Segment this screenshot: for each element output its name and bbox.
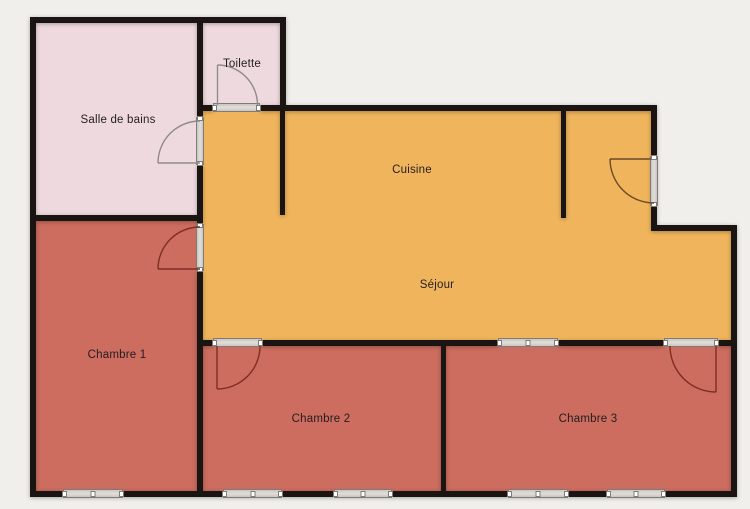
wall-mid-vertical-b: [197, 165, 203, 225]
floor-plan: Salle de bains Toilette Cuisine Séjour C…: [0, 0, 750, 509]
wall-cuisine-top: [280, 105, 657, 111]
window-end-icon: [554, 340, 559, 346]
jamb-icon: [651, 155, 657, 160]
label-sejour: Séjour: [420, 279, 454, 291]
window-end-icon: [564, 491, 569, 497]
jamb-icon: [212, 340, 217, 346]
window-end-icon: [278, 491, 283, 497]
label-salle-de-bains: Salle de bains: [80, 114, 155, 126]
door-opening-salle-de-bains: [196, 117, 204, 165]
door-opening-toilette: [213, 103, 260, 112]
jamb-icon: [197, 223, 203, 228]
window-sejour-chambre3: [498, 338, 558, 347]
wall-mid-vertical-c: [197, 271, 203, 491]
window-chambre1: [63, 489, 123, 498]
wall-right: [731, 225, 737, 497]
window-divider-icon: [250, 491, 255, 497]
window-divider-icon: [634, 491, 639, 497]
wall-left: [30, 17, 36, 497]
window-chambre2-a: [223, 489, 282, 498]
wall-toilette-right: [280, 17, 286, 111]
window-end-icon: [497, 340, 502, 346]
window-end-icon: [606, 491, 611, 497]
window-chambre3-b: [607, 489, 665, 498]
jamb-icon: [212, 105, 217, 111]
window-chambre3-a: [508, 489, 568, 498]
label-chambre-1: Chambre 1: [88, 349, 147, 361]
window-end-icon: [62, 491, 67, 497]
window-end-icon: [388, 491, 393, 497]
walls-layer: [0, 0, 750, 509]
window-divider-icon: [361, 491, 366, 497]
wall-sejour-bottom-d: [718, 340, 731, 346]
door-opening-chambre-3: [664, 338, 718, 347]
window-end-icon: [661, 491, 666, 497]
window-end-icon: [507, 491, 512, 497]
jamb-icon: [714, 340, 719, 346]
wall-toilette-bottom-b: [260, 105, 280, 111]
wall-chambre2-3: [441, 340, 446, 491]
window-chambre2-b: [334, 489, 392, 498]
window-divider-icon: [536, 491, 541, 497]
door-opening-chambre-2: [213, 338, 262, 347]
wall-kitchen-partial-right: [561, 111, 566, 218]
jamb-icon: [258, 340, 263, 346]
wall-sejour-bottom-c: [558, 340, 664, 346]
jamb-icon: [197, 267, 203, 272]
jamb-icon: [197, 161, 203, 166]
window-end-icon: [333, 491, 338, 497]
jamb-icon: [663, 340, 668, 346]
door-opening-entrance: [650, 156, 658, 206]
window-divider-icon: [91, 491, 96, 497]
wall-step: [651, 225, 737, 231]
wall-mid-vertical-a: [197, 17, 203, 117]
wall-sejour-bottom-b: [262, 340, 498, 346]
window-end-icon: [119, 491, 124, 497]
label-cuisine: Cuisine: [392, 164, 432, 176]
label-chambre-3: Chambre 3: [559, 413, 618, 425]
window-divider-icon: [526, 340, 531, 346]
jamb-icon: [197, 116, 203, 121]
wall-top: [30, 17, 286, 23]
wall-sejour-bottom-a: [197, 340, 213, 346]
label-chambre-2: Chambre 2: [292, 413, 351, 425]
label-toilette: Toilette: [223, 58, 261, 70]
jamb-icon: [651, 202, 657, 207]
wall-kitchen-partial-left: [280, 111, 285, 215]
window-end-icon: [222, 491, 227, 497]
door-opening-chambre-1: [196, 224, 204, 271]
jamb-icon: [256, 105, 261, 111]
wall-sdb-bottom: [30, 215, 197, 221]
